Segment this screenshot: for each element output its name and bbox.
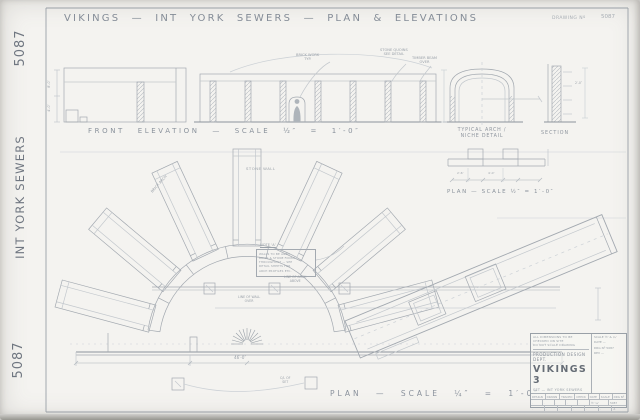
table-cell: · [555, 400, 567, 405]
title-block-side-field: REV — [594, 351, 624, 356]
plan-label-wall-over: LINE OF WALLOVER [238, 296, 260, 303]
table-cell: TRACED [560, 394, 575, 399]
arcade-piers [148, 246, 346, 331]
table-cell: CHECK [575, 394, 588, 399]
section-caption: SECTION [541, 131, 569, 137]
detail-plan-linework [448, 149, 548, 182]
title-block-company: PRODUCTION DESIGN DEPT. [533, 349, 589, 362]
elevation-dim-b: 4′-0″ [48, 96, 52, 120]
title-block-revision-table: DESIGN DRAWN TRACED CHECK DATE SCALE DRG… [531, 394, 626, 411]
table-cell: · [543, 400, 555, 405]
table-cell: DRAWN [546, 394, 560, 399]
drawing-sheet: 5087 INT YORK SEWERS 5087 VIKINGS — INT … [0, 0, 640, 420]
detail-plan-dim-b: 4′-0″ [488, 172, 495, 175]
centre-sunburst-icon [231, 328, 263, 344]
plan-label-cl-of-set: C/L OFSET [280, 377, 290, 384]
elevation-label-beam: TIMBER BEAMOVER [412, 56, 437, 64]
plan-note-box: WALLS TO BE AGED BRICK & STONE FINISH TH… [256, 249, 316, 277]
table-cell: · [558, 406, 572, 411]
table-cell: · [572, 406, 586, 411]
plan-label-line-of-arch: LINE OF ARCHABOVE [284, 276, 306, 283]
table-cell: · [566, 400, 578, 405]
page-title: VIKINGS — INT YORK SEWERS — PLAN & ELEVA… [64, 13, 478, 25]
arch-detail-caption: TYPICAL ARCH /NICHE DETAIL [444, 128, 520, 139]
table-cell: · [578, 400, 590, 405]
detail-plan-caption: PLAN — SCALE ½″ = 1′-0″ [447, 189, 554, 195]
table-cell: DATE [589, 394, 600, 399]
front-elevation-linework [54, 54, 442, 122]
table-cell: A [612, 406, 626, 411]
table-cell: DESIGN [531, 394, 546, 399]
plan-caption: PLAN — SCALE ¼″ = 1′-0″ [330, 390, 540, 399]
corner-drawing-no-label: DRAWING Nº [552, 16, 586, 21]
elevation-dim-a: 8′-0″ [48, 72, 52, 96]
elevation-label-brickwork: BRICK WORKTYP. [296, 53, 319, 61]
table-cell: · [545, 406, 559, 411]
title-block-show-title: VIKINGS 3 [533, 364, 589, 386]
corner-drawing-no-value: 5087 [601, 14, 615, 20]
title-block-set-line: SET — INT YORK SEWERS [533, 388, 589, 392]
plan-overall-dim: 46′-0″ [234, 356, 246, 361]
table-cell: DRG Nº [613, 394, 626, 399]
margin-set-title: INT YORK SEWERS [14, 132, 30, 262]
table-cell: · [585, 406, 599, 411]
front-elevation-caption: FRONT ELEVATION — SCALE ½″ = 1′-0″ [88, 127, 360, 135]
scale-figure-icon [295, 99, 300, 104]
arch-detail-linework [441, 62, 542, 127]
scan-edge [0, 414, 640, 420]
section-detail-linework [544, 64, 588, 122]
table-cell: 5087 [609, 400, 626, 405]
table-cell: · [531, 406, 545, 411]
margin-number-top: 5087 [14, 18, 30, 78]
table-cell: · [531, 400, 543, 405]
detail-plan-dim-a: 2′-6″ [457, 172, 464, 175]
section-dim: 2′-0″ [575, 82, 582, 86]
title-block-note: DO NOT SCALE DRAWING [533, 343, 589, 347]
margin-number-bottom: 5087 [12, 330, 28, 390]
plan-note-title: NOTE ‘A’ [260, 243, 276, 247]
title-block: ALL DIMENSIONS TO BE CHECKED ON SITE DO … [530, 333, 627, 408]
elevation-label-stone: STONE QUOINSSEE DETAIL [380, 48, 408, 56]
plan-label-stone-wall: STONE WALL [246, 167, 276, 171]
radial-corridor [55, 149, 439, 332]
plan-note-line: ARCH PROFILES ETC. [259, 269, 313, 273]
table-cell: · [599, 406, 613, 411]
table-cell: ½″ ¼″ [590, 400, 609, 405]
table-cell: SCALE [600, 394, 613, 399]
